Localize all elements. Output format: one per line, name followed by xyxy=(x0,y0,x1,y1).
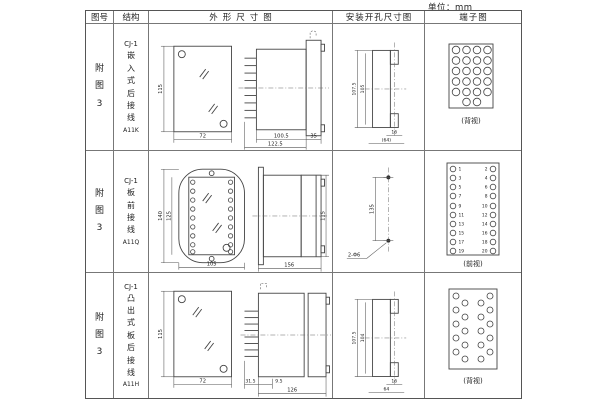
row1-structure-cell: CJ-1 嵌入式后接线 A11K xyxy=(114,24,149,151)
svg-text:15: 15 xyxy=(459,230,465,236)
svg-text:7: 7 xyxy=(459,193,462,199)
structure-desc: 嵌入式后接线 xyxy=(127,50,136,124)
spec-sheet-page: 单位：mm 图号 结构 外形尺寸图 安装开孔尺寸图 端子图 附图3 CJ-1 嵌… xyxy=(0,0,600,400)
model-label: CJ-1 xyxy=(124,177,138,185)
view-label: (背视) xyxy=(463,376,483,385)
dim-label: 115 xyxy=(158,84,164,94)
row2-fig-no-cell: 附图3 xyxy=(86,151,114,273)
fig-no-label: 附图3 xyxy=(94,310,105,361)
hole-dimensions: 135 2-Φ6 xyxy=(347,177,387,258)
dim-label: 35 xyxy=(310,133,317,139)
front-view xyxy=(174,46,232,132)
svg-text:6: 6 xyxy=(485,184,488,190)
structure-desc: 板前接线 xyxy=(127,187,136,237)
structure-code: A11K xyxy=(123,127,139,134)
structure-code: A11Q xyxy=(123,239,139,246)
svg-text:11: 11 xyxy=(459,212,465,218)
row1-fig-no-cell: 附图3 xyxy=(86,24,114,151)
outline-drawing-a11k: 115 72 xyxy=(149,24,332,151)
header-install: 安装开孔尺寸图 xyxy=(333,11,425,24)
header-terminal: 端子图 xyxy=(425,11,521,24)
side-dimensions: 31.5 9.5 126 xyxy=(244,361,326,397)
row3-fig-no-cell: 附图3 xyxy=(86,273,114,398)
model-label: CJ-1 xyxy=(124,283,138,291)
dim-label: 16 xyxy=(391,129,397,135)
install-drawing-a11k: 107.5 105 16 (64) xyxy=(333,24,424,151)
row3-outline-cell: 115 72 xyxy=(149,273,333,398)
svg-text:12: 12 xyxy=(482,212,488,218)
dim-label: 31.5 xyxy=(245,379,255,385)
svg-text:3: 3 xyxy=(459,175,462,181)
dim-label: 104 xyxy=(360,334,366,343)
cutout-shape xyxy=(365,291,407,384)
dim-label: 107.5 xyxy=(352,82,358,95)
dim-label: 105 xyxy=(207,261,217,267)
dim-label: 125 xyxy=(166,211,172,221)
svg-text:18: 18 xyxy=(482,239,488,245)
row2-terminal-cell: 12 34 56 78 910 1112 1314 1516 1718 1920… xyxy=(425,151,521,273)
view-label: (背视) xyxy=(461,116,481,125)
dim-label: 156 xyxy=(284,262,294,268)
terminal-circles xyxy=(452,46,491,106)
dim-label: 107.5 xyxy=(352,331,358,344)
row2-install-cell: 135 2-Φ6 xyxy=(333,151,425,273)
holes-label: 2-Φ6 xyxy=(348,252,360,258)
front-view xyxy=(179,169,245,262)
header-fig-no: 图号 xyxy=(86,11,114,24)
header-structure: 结构 xyxy=(114,11,149,24)
dim-label: 126 xyxy=(287,388,297,394)
install-drawing-a11h: 107.5 104 16 64 xyxy=(333,273,424,398)
model-label: CJ-1 xyxy=(124,40,138,48)
header-outline: 外形尺寸图 xyxy=(149,11,333,24)
front-view xyxy=(174,291,232,377)
terminal-numbers: 12 34 56 78 910 1112 1314 1516 1718 1920 xyxy=(459,166,488,254)
row3-terminal-cell: (背视) xyxy=(425,273,521,398)
row3-install-cell: 107.5 104 16 64 xyxy=(333,273,425,398)
terminal-block-outline xyxy=(449,289,497,369)
terminal-diagram-a11h: (背视) xyxy=(425,273,521,398)
front-dimensions: 115 72 xyxy=(158,291,232,387)
hole-layout xyxy=(383,167,393,252)
side-view xyxy=(239,30,330,135)
cutout-shape xyxy=(365,42,407,135)
row1-terminal-cell: (背视) xyxy=(425,24,521,151)
dim-label: 9.5 xyxy=(275,379,282,385)
dim-label: 72 xyxy=(199,379,206,385)
svg-text:16: 16 xyxy=(482,230,488,236)
svg-text:14: 14 xyxy=(482,221,488,227)
dim-label: 135 xyxy=(370,204,376,214)
dim-label: 140 xyxy=(158,211,164,221)
svg-text:9: 9 xyxy=(459,203,462,209)
terminal-diagram-a11q: 12 34 56 78 910 1112 1314 1516 1718 1920… xyxy=(425,151,521,273)
dim-label: 122.5 xyxy=(268,141,283,147)
side-view xyxy=(252,167,329,264)
svg-text:13: 13 xyxy=(459,221,465,227)
outline-drawing-a11h: 115 72 xyxy=(149,273,332,398)
row2-structure-cell: CJ-1 板前接线 A11Q xyxy=(114,151,149,273)
svg-text:17: 17 xyxy=(459,239,465,245)
svg-text:5: 5 xyxy=(459,184,462,190)
svg-text:10: 10 xyxy=(482,203,488,209)
svg-text:19: 19 xyxy=(459,248,465,254)
dim-label: 115 xyxy=(321,211,327,221)
install-drawing-a11q: 135 2-Φ6 xyxy=(333,151,424,273)
terminal-diagram-a11k: (背视) xyxy=(425,24,521,151)
dim-label: 115 xyxy=(158,329,164,339)
dim-label: 64 xyxy=(384,386,390,392)
svg-text:2: 2 xyxy=(485,166,488,172)
dim-label: 72 xyxy=(199,133,206,139)
terminal-block-outline xyxy=(447,163,499,255)
dim-label: 105 xyxy=(360,84,366,93)
structure-code: A11H xyxy=(123,381,139,388)
svg-text:4: 4 xyxy=(485,175,488,181)
svg-text:8: 8 xyxy=(485,193,488,199)
side-view xyxy=(241,283,332,376)
view-label: (前视) xyxy=(463,259,483,268)
front-dimensions: 115 72 xyxy=(158,46,232,142)
row2-outline-cell: 140 125 105 xyxy=(149,151,333,273)
row1-outline-cell: 115 72 xyxy=(149,24,333,151)
fig-no-label: 附图3 xyxy=(94,186,105,237)
row3-structure-cell: CJ-1 凸出式板后接线 A11H xyxy=(114,273,149,398)
fig-no-label: 附图3 xyxy=(94,61,105,112)
structure-desc: 凸出式板后接线 xyxy=(127,293,136,380)
dim-label: 16 xyxy=(391,378,397,384)
terminal-circles xyxy=(450,166,496,254)
side-dimensions: 156 115 xyxy=(258,175,329,271)
svg-text:1: 1 xyxy=(459,166,462,172)
row1-install-cell: 107.5 105 16 (64) xyxy=(333,24,425,151)
dim-label: (64) xyxy=(382,137,392,143)
svg-text:20: 20 xyxy=(482,248,488,254)
outline-drawing-a11q: 140 125 105 xyxy=(149,151,332,273)
dim-label: 100.5 xyxy=(274,133,289,139)
terminal-circles xyxy=(453,293,493,362)
spec-table: 图号 结构 外形尺寸图 安装开孔尺寸图 端子图 附图3 CJ-1 嵌入式后接线 … xyxy=(85,10,522,399)
